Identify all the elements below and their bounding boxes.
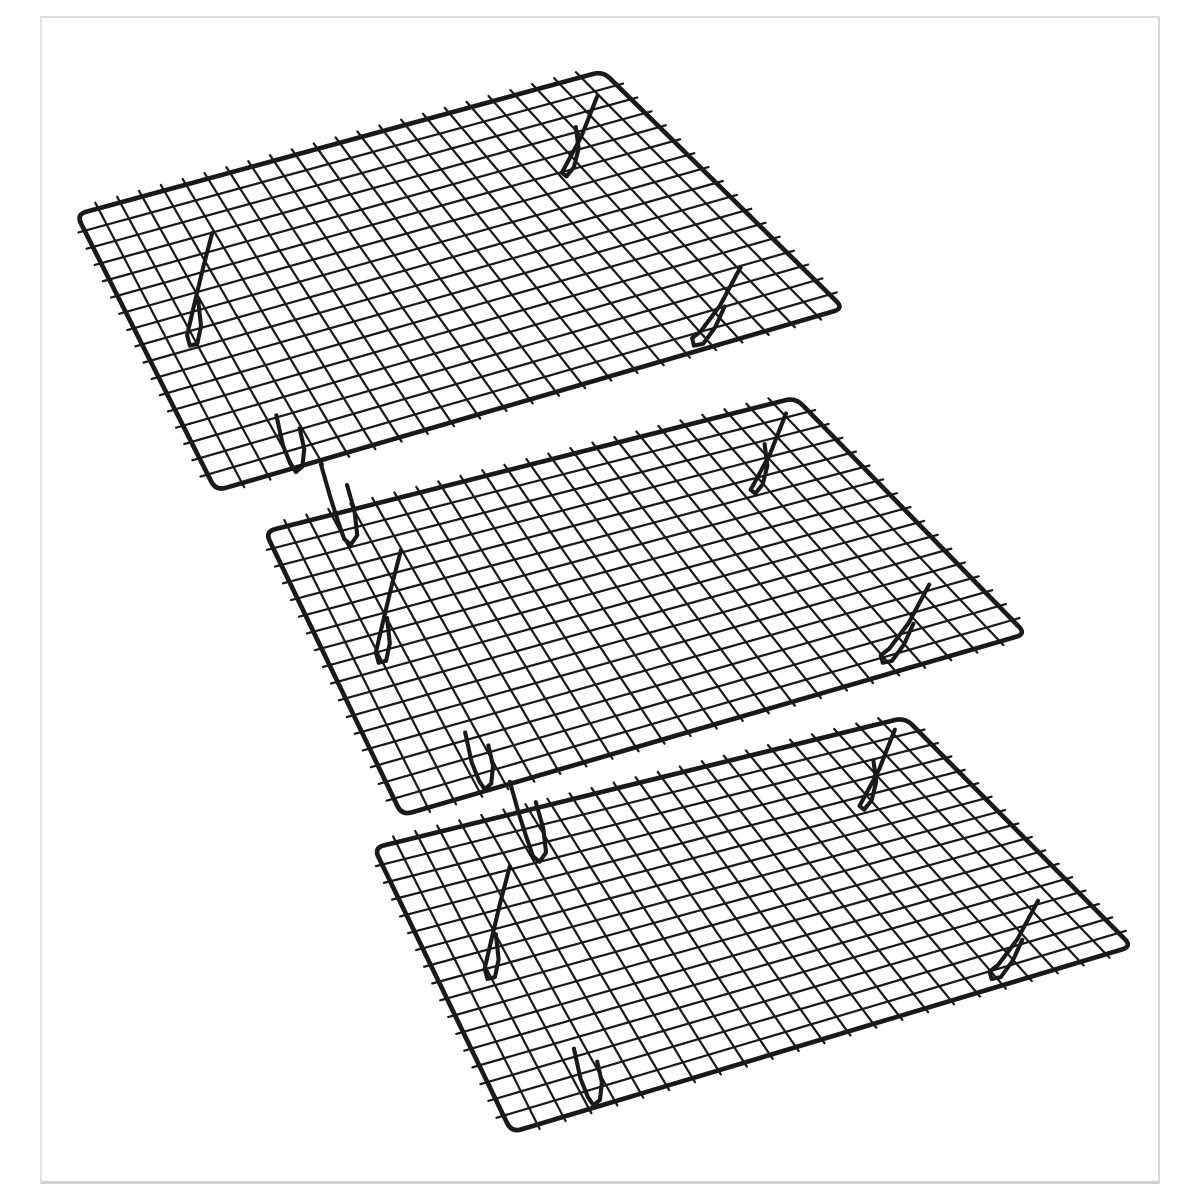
rack-foot-front-right xyxy=(990,901,1038,979)
cooling-rack-bottom xyxy=(376,718,1128,1130)
product-photo xyxy=(40,16,1160,1184)
cooling-racks-illustration xyxy=(42,18,1158,1181)
cooling-rack-middle xyxy=(267,398,1022,862)
rack-foot-front-left xyxy=(465,732,493,789)
rack-foot-front-left xyxy=(574,1049,602,1106)
rack-frame xyxy=(80,73,840,488)
